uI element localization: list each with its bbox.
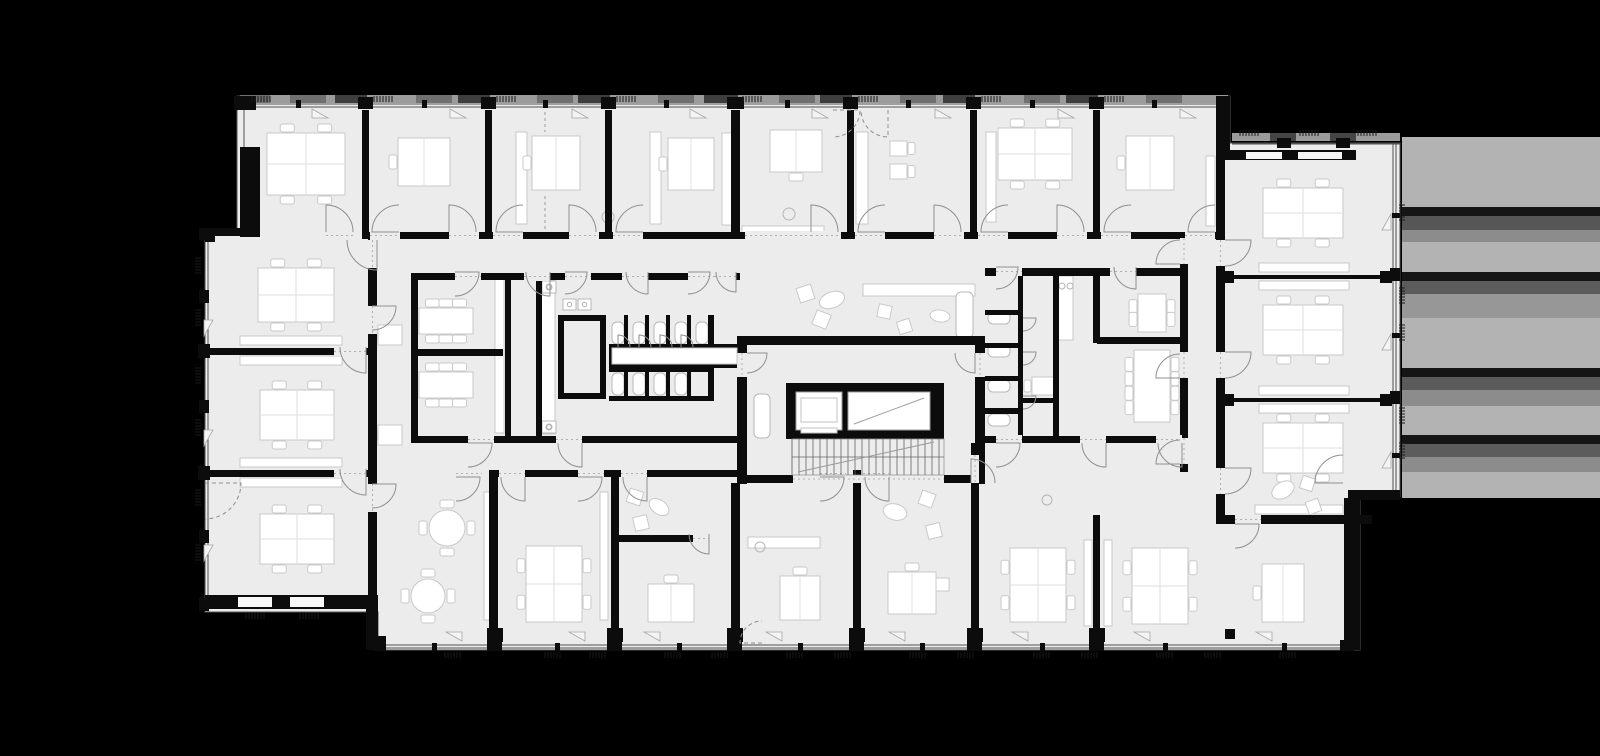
chair [447, 589, 455, 603]
wall [624, 368, 628, 398]
window-mullion [555, 643, 560, 651]
wc-fixture [754, 394, 770, 438]
wall [411, 273, 418, 443]
window-mullion [199, 344, 209, 358]
chair [1129, 312, 1137, 326]
wall [1018, 398, 1059, 403]
wc-fixture [988, 380, 1010, 392]
chair [1277, 179, 1291, 187]
chair [271, 259, 285, 267]
chair [421, 615, 435, 623]
door-gap [1080, 435, 1106, 444]
sideboard [1255, 505, 1343, 514]
sideboard [600, 492, 608, 620]
shadow-stripe [1402, 294, 1600, 318]
chair [908, 143, 915, 155]
door-gap [455, 272, 481, 281]
window-mullion [237, 97, 249, 109]
wc-fixture [675, 373, 687, 395]
meeting-table [419, 372, 473, 398]
window-mullion [1390, 268, 1400, 281]
wall [624, 315, 628, 347]
chair [272, 381, 286, 389]
chair [1189, 561, 1197, 575]
small-table [378, 425, 402, 445]
shadow-stripe [1402, 137, 1600, 207]
window-mullion [1392, 453, 1400, 458]
window-mullion [432, 643, 437, 651]
window-mullion [199, 530, 209, 543]
window-mullion [199, 290, 209, 303]
lounge-pouf [926, 523, 943, 540]
chair [453, 299, 467, 307]
chair [908, 166, 915, 178]
wall [1093, 110, 1100, 236]
chair [1167, 300, 1175, 314]
shadow-stripe [1402, 435, 1600, 444]
chair [1010, 119, 1024, 127]
chair [1117, 156, 1125, 170]
sideboard [240, 356, 342, 365]
wall [1053, 340, 1059, 443]
window-mullion [422, 100, 427, 108]
wall [600, 315, 606, 399]
wall [1093, 268, 1100, 343]
chair [1277, 356, 1291, 364]
chair [1067, 560, 1075, 574]
chair [1001, 596, 1009, 610]
facade-smudge [1024, 95, 1060, 103]
chair [271, 323, 285, 331]
chair [1315, 296, 1329, 304]
floor-plan-page [0, 0, 1600, 756]
window-mullion [199, 228, 209, 240]
chair [1315, 179, 1329, 187]
small-table [1032, 377, 1056, 395]
sideboard [540, 280, 555, 434]
wc-fixture [956, 292, 973, 338]
window-mullion [1336, 138, 1350, 148]
sideboard [240, 478, 342, 487]
chair [453, 363, 467, 371]
facade-smudge [290, 95, 326, 103]
sink [578, 299, 591, 310]
round-table [411, 579, 445, 613]
wall [737, 336, 985, 345]
wall [558, 393, 606, 399]
wall [666, 315, 670, 347]
chair [793, 567, 807, 575]
chair [389, 155, 397, 169]
wall [411, 349, 503, 356]
chair [1125, 386, 1133, 400]
shadow-stripe [1402, 472, 1600, 498]
chair [439, 335, 453, 343]
chair [1277, 239, 1291, 247]
window-gap [1246, 152, 1282, 159]
chair [1125, 372, 1133, 386]
facade-smudge [416, 95, 452, 103]
chair [789, 173, 803, 181]
chair [1010, 181, 1024, 189]
chair [439, 399, 453, 407]
meeting-table [1138, 294, 1166, 332]
lounge-pouf [633, 515, 650, 532]
sideboard [856, 132, 868, 224]
shadow-stripe [1402, 216, 1600, 230]
chair [307, 259, 321, 267]
window-mullion [664, 100, 669, 108]
chair [426, 299, 440, 307]
chair [318, 124, 332, 132]
shadow-stripe [1402, 368, 1600, 377]
floor-plan-canvas [0, 0, 1600, 756]
wall [1222, 271, 1234, 283]
shadow-stripe [1402, 318, 1600, 368]
window-mullion [1390, 391, 1400, 404]
door-gap [499, 469, 525, 478]
chair [1171, 401, 1179, 415]
wall [487, 628, 503, 642]
chair [280, 124, 294, 132]
wall [985, 408, 1018, 414]
chair [426, 399, 440, 407]
window-gap [238, 597, 272, 607]
wall [611, 535, 707, 542]
chair [1277, 296, 1291, 304]
window-mullion [199, 466, 209, 480]
door-gap [556, 435, 582, 444]
sideboard [1259, 404, 1349, 413]
chair [453, 399, 467, 407]
chair [905, 563, 919, 571]
shadow-stripe [1402, 242, 1600, 272]
door-gap [621, 469, 647, 478]
wall [687, 368, 691, 398]
chair [426, 335, 440, 343]
wall [847, 110, 854, 236]
window-mullion [1040, 643, 1045, 651]
wc-fixture [654, 373, 666, 395]
shadow-stripe [1402, 207, 1600, 216]
chair [517, 559, 525, 573]
shadow-stripe [1402, 457, 1600, 472]
window-mullion [374, 640, 386, 651]
chair [1171, 372, 1179, 386]
chair [1129, 300, 1137, 314]
wall [731, 110, 740, 236]
wall [687, 315, 691, 347]
chair [1046, 181, 1060, 189]
chair [1125, 357, 1133, 371]
elevator-cab-strip [801, 428, 837, 433]
window-mullion [199, 400, 209, 413]
window-mullion [199, 598, 209, 611]
wall [1097, 337, 1187, 344]
chair [318, 196, 332, 204]
wc-fixture [633, 373, 645, 395]
door-gap [524, 272, 550, 281]
sideboard [240, 336, 342, 345]
window-mullion [727, 97, 744, 109]
window-mullion [967, 640, 982, 651]
wall [362, 110, 369, 236]
chair [272, 441, 286, 449]
wall [645, 368, 649, 398]
facade-smudge [1232, 133, 1400, 141]
wall [1222, 275, 1392, 279]
wall [853, 470, 861, 640]
sideboard [1259, 263, 1349, 272]
chair [1024, 380, 1031, 392]
shadow-stripe [1402, 390, 1600, 406]
door-gap [1216, 240, 1225, 266]
chair [1123, 597, 1131, 611]
facade-smudge [1146, 95, 1182, 103]
chair [419, 521, 427, 535]
round-table [429, 510, 465, 546]
chair [1046, 119, 1060, 127]
window-mullion [358, 97, 373, 109]
window-mullion [543, 100, 548, 108]
window-mullion [677, 643, 682, 651]
chair [1315, 239, 1329, 247]
wall [731, 483, 740, 640]
sideboard [1058, 276, 1073, 340]
chair [1253, 586, 1261, 600]
chair [659, 157, 667, 171]
window-mullion [1030, 100, 1035, 108]
chair [308, 381, 322, 389]
sink [542, 281, 556, 293]
sideboard [936, 578, 949, 591]
wall [849, 628, 865, 642]
window-mullion [1089, 97, 1104, 109]
facade-smudge [900, 95, 936, 103]
door-gap [368, 240, 377, 268]
window-mullion [601, 97, 616, 109]
chair [1315, 474, 1329, 482]
wall [1093, 515, 1100, 640]
wall [536, 273, 542, 443]
wall [1216, 96, 1230, 150]
wall [611, 470, 619, 640]
chair [307, 323, 321, 331]
wall-counter [612, 348, 737, 364]
chair [1315, 356, 1329, 364]
window-mullion [487, 640, 502, 651]
window-mullion [1163, 643, 1168, 651]
facade-smudge [779, 95, 815, 103]
wall [558, 315, 564, 399]
shadow-stripe [1402, 281, 1600, 294]
meeting-table [1134, 350, 1170, 422]
window-mullion [1340, 640, 1354, 651]
wall [737, 475, 793, 483]
sideboard [240, 458, 342, 467]
wall [970, 110, 977, 236]
window-mullion [1089, 640, 1104, 651]
window-mullion [798, 643, 803, 651]
wall [1222, 398, 1392, 402]
chair [1171, 386, 1179, 400]
chair [523, 156, 531, 170]
lounge-pouf [877, 304, 892, 319]
wc-fixture [696, 322, 708, 344]
small-table [890, 164, 907, 179]
wall [666, 368, 670, 398]
facade-smudge [537, 95, 573, 103]
chair [1189, 597, 1197, 611]
wall [485, 110, 492, 236]
wall [558, 315, 606, 321]
chair [439, 299, 453, 307]
wall [609, 396, 714, 401]
door-gap [1180, 438, 1188, 464]
window-mullion [1277, 138, 1291, 148]
chair [453, 335, 467, 343]
window-mullion [920, 643, 925, 651]
chair [439, 363, 453, 371]
chair [1315, 414, 1329, 422]
wall [1222, 394, 1234, 406]
door-gap [693, 534, 709, 543]
window-mullion [1282, 643, 1287, 651]
chair [1001, 560, 1009, 574]
chair [1277, 414, 1291, 422]
window-mullion [785, 100, 790, 108]
window-mullion [1392, 213, 1400, 218]
column [1225, 629, 1235, 639]
chair [664, 575, 678, 583]
shadow-stripe [1402, 406, 1600, 435]
sideboard [1206, 156, 1215, 226]
chair [308, 565, 322, 573]
wall [1089, 628, 1105, 642]
door-gap [1216, 352, 1225, 378]
wall [605, 110, 612, 236]
window-mullion [966, 97, 981, 109]
wall [985, 343, 1018, 348]
wall [645, 315, 649, 347]
wall [489, 470, 498, 640]
chair [401, 589, 409, 603]
window-mullion [843, 97, 858, 109]
window-gap [1298, 152, 1342, 159]
chair [308, 505, 322, 513]
window-mullion [1392, 333, 1400, 338]
chair [1123, 561, 1131, 575]
window-mullion [481, 97, 496, 109]
window-mullion [906, 100, 911, 108]
chair [421, 569, 435, 577]
shadow-stripe [1402, 272, 1600, 281]
chair [272, 565, 286, 573]
sideboard [1259, 386, 1349, 395]
chair [280, 196, 294, 204]
wall [727, 628, 743, 642]
wc-fixture [612, 373, 624, 395]
door-gap [1180, 352, 1188, 378]
chair [583, 559, 591, 573]
chair [1171, 357, 1179, 371]
wall [607, 628, 623, 642]
sideboard [1084, 540, 1092, 626]
window-mullion [296, 100, 301, 108]
small-table [890, 141, 907, 156]
chair [467, 521, 475, 535]
sink [542, 421, 556, 433]
chair [517, 595, 525, 609]
chair [1067, 596, 1075, 610]
sideboard [650, 132, 661, 224]
facade-smudge [658, 95, 694, 103]
window-mullion [1152, 100, 1157, 108]
sink [563, 299, 576, 310]
chair [583, 595, 591, 609]
door-gap [1216, 468, 1225, 494]
shadow-stripe [1402, 444, 1600, 457]
wall [967, 628, 983, 642]
chair [1125, 401, 1133, 415]
window-gap [290, 597, 324, 607]
sideboard [1259, 281, 1349, 290]
chair [308, 441, 322, 449]
wc-fixture [988, 414, 1010, 426]
chair [426, 363, 440, 371]
wall [1216, 150, 1225, 523]
wall [1053, 268, 1059, 343]
wall [505, 273, 511, 443]
chair [1167, 312, 1175, 326]
wall [240, 147, 260, 237]
shadow-stripe [1402, 230, 1600, 242]
wall [1018, 276, 1023, 443]
wall [985, 310, 1018, 315]
shadow-stripe [1402, 377, 1600, 390]
door-gap [1180, 238, 1188, 264]
wall [985, 376, 1018, 381]
chair [440, 500, 454, 508]
wall [368, 236, 377, 600]
chair [440, 548, 454, 556]
window-mullion [849, 640, 864, 651]
sideboard [1104, 540, 1112, 626]
meeting-table [419, 308, 473, 334]
chair [272, 505, 286, 513]
door-gap [1235, 515, 1261, 524]
sideboard [516, 132, 527, 224]
window-mullion [607, 640, 622, 651]
